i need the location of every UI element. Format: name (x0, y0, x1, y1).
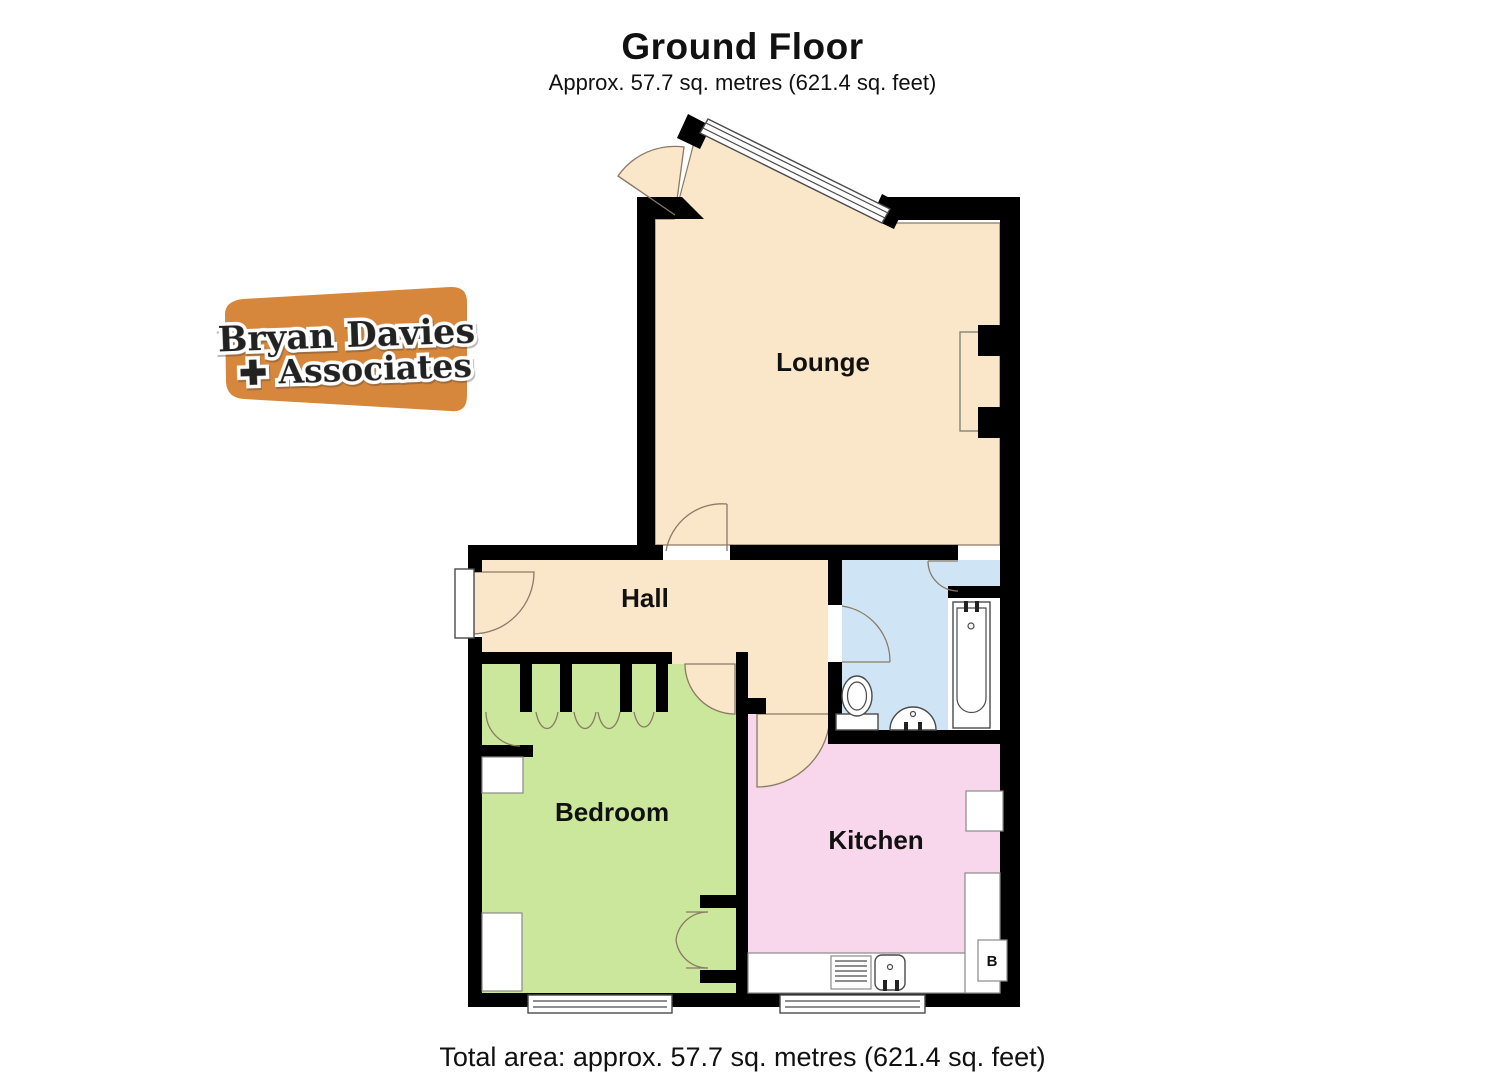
recess-stub (482, 745, 533, 757)
hall-doorway-strip (672, 652, 736, 664)
wall-kitchen-door-jamb (748, 698, 766, 714)
kitchen-counter-upper-right (966, 791, 1003, 831)
floorplan-drawing: B Lounge Hall Bedroom Kitchen Bryan Davi… (0, 0, 1485, 1080)
floorplan-page: B Lounge Hall Bedroom Kitchen Bryan Davi… (0, 0, 1485, 1080)
wardrobe-stub-1 (520, 663, 532, 712)
window-frame (528, 995, 672, 1013)
wall-bedroom-right (736, 652, 748, 993)
boiler: B (978, 940, 1007, 981)
wall-bedroom-top (482, 652, 672, 664)
sink-tap (883, 980, 887, 991)
basin-tap (918, 722, 922, 731)
page-title: Ground Floor (0, 26, 1485, 68)
fireplace-pier-bottom (978, 407, 1008, 438)
basin-tap (904, 722, 908, 731)
wall-lounge-bottom-left (637, 545, 663, 560)
fireplace-pier-top (978, 325, 1008, 356)
wall-bathroom-bottom (828, 730, 1000, 744)
agency-logo: Bryan Davies ✚ Associates (217, 287, 477, 411)
page-subtitle: Approx. 57.7 sq. metres (621.4 sq. feet) (0, 70, 1485, 96)
bathtub-tap (975, 601, 979, 612)
lounge-label: Lounge (776, 347, 870, 377)
kitchen-label: Kitchen (828, 825, 923, 855)
kitchen-window (780, 995, 925, 1013)
closet-stub-top (700, 895, 741, 908)
wardrobe-stub-4 (656, 663, 668, 712)
wardrobe-stub-2 (560, 663, 572, 712)
wall-lounge-bottom-mid (730, 545, 958, 560)
wall-left-lower (468, 637, 482, 1007)
kitchen-sink (831, 955, 905, 991)
kitchen-counter-bottom (748, 953, 1000, 993)
window-frame (780, 995, 925, 1013)
wall-hall-top (468, 545, 655, 560)
bathtub-tap (964, 601, 968, 612)
sink-bowl (875, 955, 905, 990)
hall-label: Hall (621, 583, 669, 613)
wall-right (1000, 197, 1020, 1007)
bedroom-label: Bedroom (555, 797, 669, 827)
wardrobe-stub-3 (620, 663, 632, 712)
bedroom-window (528, 995, 672, 1013)
wall-lounge-left (637, 197, 655, 560)
bathtub (953, 601, 990, 728)
front-door-leaf (455, 569, 474, 638)
logo-line2: ✚ Associates (239, 346, 473, 393)
bedroom-recess-lower (482, 913, 522, 991)
wall-bath-alcove-stub (948, 586, 1000, 598)
boiler-label: B (987, 953, 998, 970)
wall-bathroom-left-upper (828, 560, 842, 605)
total-area-text: Total area: approx. 57.7 sq. metres (621… (0, 1042, 1485, 1073)
bathtub-outline (953, 602, 990, 728)
closet-stub-bottom (700, 970, 741, 983)
sink-tap (895, 980, 899, 991)
bedroom-recess-upper (482, 757, 523, 793)
